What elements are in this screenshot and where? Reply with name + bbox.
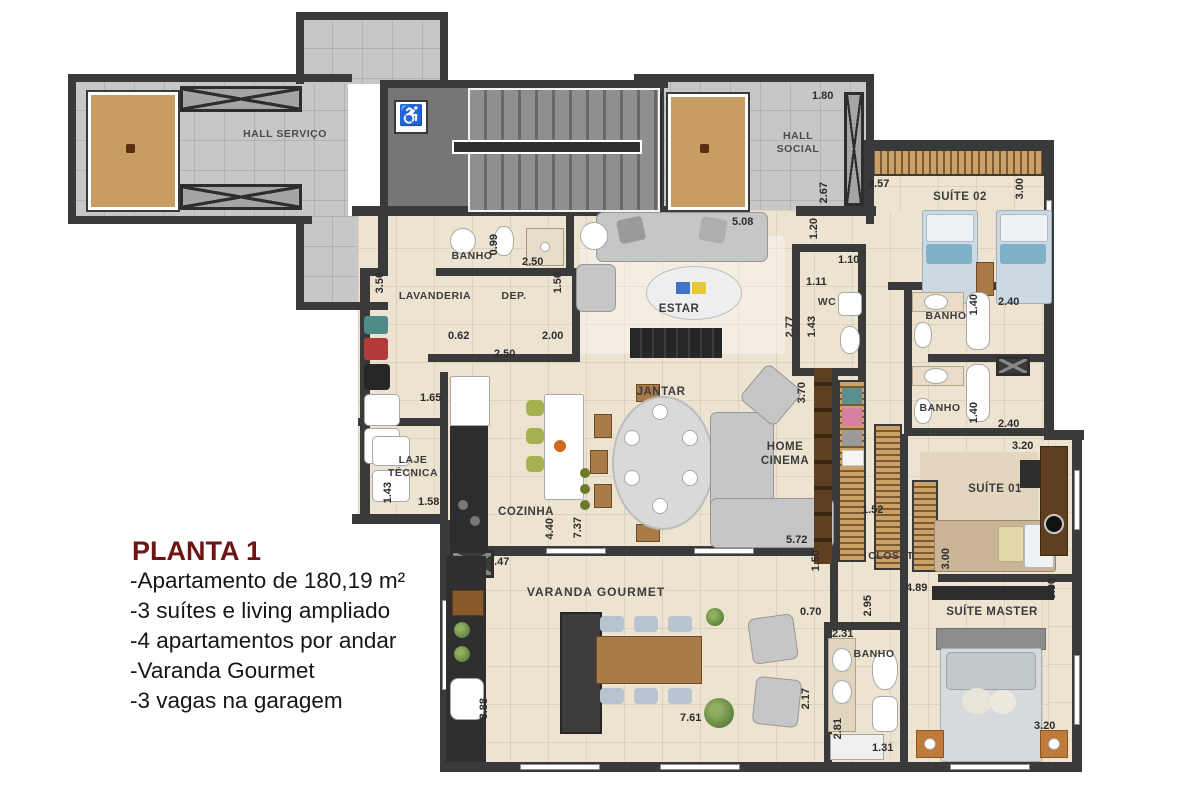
- dimension-label: 1.58: [418, 496, 439, 508]
- dimension-label: 1.65: [420, 392, 441, 404]
- wood-deck: [866, 149, 1044, 176]
- fridge: [450, 376, 490, 426]
- wall: [928, 354, 1054, 362]
- elevator-floor-marker: [126, 144, 135, 153]
- pillow: [990, 690, 1016, 714]
- blanket: [926, 244, 972, 264]
- bidet: [872, 696, 898, 732]
- dimension-label: 4.89: [906, 582, 927, 594]
- wall: [378, 206, 388, 276]
- dimension-label: 5.08: [732, 216, 753, 228]
- headboard: [936, 628, 1046, 650]
- dimension-label: 3.90: [1046, 578, 1058, 599]
- plate: [682, 470, 698, 486]
- cooktop-burner: [458, 500, 468, 510]
- elevator-floor-marker: [700, 144, 709, 153]
- dimension-label: 1.40: [968, 402, 980, 423]
- wheelchair-accessible-icon: ♿: [394, 100, 428, 134]
- armchair: [576, 264, 616, 312]
- armchair: [747, 613, 799, 665]
- dimension-label: 2.00: [542, 330, 563, 342]
- stool: [526, 400, 544, 416]
- dimension-label: 2.17: [800, 688, 812, 709]
- side-table: [580, 222, 608, 250]
- wall: [634, 74, 874, 82]
- decor-item: [676, 282, 690, 294]
- duct-shaft-symbol: [996, 356, 1030, 376]
- dimension-label: 2.40: [998, 296, 1019, 308]
- plant: [454, 622, 470, 638]
- dining-chair: [590, 450, 608, 474]
- pillow: [1000, 214, 1048, 242]
- wall: [68, 216, 312, 224]
- stair-handrail: [452, 140, 642, 154]
- dimension-label: 2.50: [522, 256, 543, 268]
- wall: [68, 74, 352, 82]
- room-label-estar: ESTAR: [650, 302, 708, 316]
- room-label-suite-01: SUÍTE 01: [956, 482, 1034, 496]
- dimension-label: 0.70: [800, 606, 821, 618]
- folded-clothes: [842, 408, 862, 426]
- lamp: [924, 738, 936, 750]
- folded-clothes: [842, 450, 864, 466]
- plate: [624, 470, 640, 486]
- plant: [706, 608, 724, 626]
- plate: [682, 430, 698, 446]
- dimension-label: 5.72: [786, 534, 807, 546]
- room-label-suite-02: SUÍTE 02: [922, 190, 998, 204]
- plate: [624, 430, 640, 446]
- room-label-lavanderia: LAVANDERIA: [392, 290, 478, 303]
- appliance: [364, 394, 400, 426]
- wall: [792, 244, 800, 374]
- dimension-label: 7.61: [680, 712, 701, 724]
- wall: [900, 574, 908, 770]
- wall: [68, 74, 76, 224]
- room-label-jantar: JANTAR: [630, 385, 692, 399]
- cooktop-burner: [470, 516, 480, 526]
- varanda-chair: [634, 616, 658, 632]
- nightstand: [976, 262, 994, 296]
- laundry-item: [364, 338, 388, 360]
- plan-info-line: -4 apartamentos por andar: [130, 628, 396, 654]
- washer: [364, 364, 390, 390]
- plant: [454, 646, 470, 662]
- room-label-suite-master: SUÍTE MASTER: [928, 605, 1056, 619]
- room-label-wc: WC: [812, 296, 842, 309]
- laundry-item: [364, 316, 388, 334]
- stool: [526, 456, 544, 472]
- plate: [652, 498, 668, 514]
- dimension-label: 3.88: [478, 698, 490, 719]
- dimension-label: 3.70: [796, 382, 808, 403]
- stool: [526, 428, 544, 444]
- dimension-label: 1.50: [552, 272, 564, 293]
- dimension-label: 4.40: [544, 518, 556, 539]
- window: [694, 548, 754, 554]
- dimension-label: 1.40: [968, 294, 980, 315]
- decor-item: [692, 282, 706, 294]
- pillow: [946, 652, 1036, 690]
- dimension-label: 1.80: [812, 90, 833, 102]
- room-label-banho-master: BANHO: [846, 648, 902, 661]
- dimension-label: 0.62: [448, 330, 469, 342]
- wall: [296, 216, 304, 310]
- elevator-door-symbol: [180, 184, 302, 210]
- room-label-hall-social: HALL SOCIAL: [762, 130, 834, 156]
- tv-wall-unit: [814, 368, 832, 564]
- dimension-label: 2.40: [998, 418, 1019, 430]
- room-label-home-cinema: HOME CINEMA: [754, 440, 816, 469]
- dimension-label: 1.50: [810, 550, 822, 571]
- dimension-label: 2.31: [832, 628, 853, 640]
- wall: [296, 12, 448, 20]
- wall: [792, 244, 866, 252]
- decor-item: [580, 484, 590, 494]
- pillow: [926, 214, 974, 242]
- wall: [566, 206, 574, 276]
- elevator-door-symbol: [844, 92, 864, 206]
- speaker: [1044, 514, 1064, 534]
- dimension-label: 7.37: [572, 517, 584, 538]
- lamp: [1048, 738, 1060, 750]
- wall: [380, 80, 668, 88]
- dimension-label: 3.56: [374, 272, 386, 293]
- window: [1074, 470, 1080, 530]
- varanda-table: [596, 636, 702, 684]
- window: [546, 548, 606, 554]
- dimension-label: 2.77: [784, 316, 796, 337]
- wall: [904, 290, 912, 434]
- dimension-label: 3.20: [1012, 440, 1033, 452]
- elevator-door-symbol: [180, 86, 302, 112]
- plan-title: PLANTA 1: [132, 536, 261, 567]
- varanda-chair: [600, 688, 624, 704]
- floor-plan: ♿: [0, 0, 1200, 791]
- dimension-label: 1.10: [838, 254, 859, 266]
- plate: [652, 404, 668, 420]
- kitchen-counter: [450, 426, 488, 550]
- varanda-chair: [668, 688, 692, 704]
- dimension-label: 7.47: [488, 556, 509, 568]
- sink: [832, 680, 852, 704]
- dimension-label: 2.50: [494, 348, 515, 360]
- pillow: [698, 216, 728, 244]
- dimension-label: 3.57: [868, 178, 889, 190]
- blanket: [1000, 244, 1046, 264]
- toilet: [840, 326, 860, 354]
- dimension-label: 2.95: [862, 595, 874, 616]
- tv-console: [630, 328, 722, 358]
- sink: [924, 368, 948, 384]
- room-label-laje-tecnica: LAJE TÉCNICA: [382, 454, 444, 480]
- varanda-chair: [600, 616, 624, 632]
- wall: [296, 12, 304, 84]
- dimension-label: 2.67: [818, 182, 830, 203]
- plan-info-line: -3 suítes e living ampliado: [130, 598, 390, 624]
- wall: [380, 80, 388, 214]
- dimension-label: 3.20: [1034, 720, 1055, 732]
- wall: [858, 140, 1054, 150]
- room-label-varanda-gourmet: VARANDA GOURMET: [520, 585, 672, 600]
- room-label-closet: CLOSET: [860, 550, 922, 563]
- room-label-banho-suite02: BANHO: [918, 310, 974, 323]
- dimension-label: 1.43: [806, 316, 818, 337]
- wall: [296, 302, 388, 310]
- room-label-hall-servico: HALL SERVIÇO: [240, 128, 330, 141]
- dimension-label: 1.52: [862, 504, 883, 516]
- dimension-label: 0.99: [488, 234, 500, 255]
- dimension-label: 1.11: [806, 276, 827, 288]
- decor-item: [580, 468, 590, 478]
- toilet: [914, 322, 932, 348]
- pillow: [962, 688, 992, 714]
- folded-clothes: [842, 430, 862, 446]
- window: [520, 764, 600, 770]
- folded-clothes: [842, 388, 862, 404]
- room-label-dep: DEP.: [494, 290, 534, 303]
- plan-info-line: -3 vagas na garagem: [130, 688, 343, 714]
- shower-drain: [540, 242, 550, 252]
- tv-console: [932, 586, 1054, 600]
- dimension-label: 1.20: [808, 218, 820, 239]
- window: [950, 764, 1030, 770]
- varanda-chair: [668, 616, 692, 632]
- wall: [440, 12, 448, 84]
- dimension-label: 1.43: [382, 482, 394, 503]
- wardrobe: [874, 424, 902, 570]
- dining-chair: [594, 484, 612, 508]
- decor-item: [580, 500, 590, 510]
- dimension-label: 1.31: [872, 742, 893, 754]
- sink: [924, 294, 948, 310]
- decor-item: [554, 440, 566, 452]
- plan-info-line: -Apartamento de 180,19 m²: [130, 568, 405, 594]
- armchair: [752, 676, 803, 729]
- plant: [704, 698, 734, 728]
- wall: [904, 428, 1054, 436]
- plan-info-line: -Varanda Gourmet: [130, 658, 315, 684]
- desk: [1040, 446, 1068, 556]
- dimension-label: 2.81: [832, 718, 844, 739]
- dining-chair: [594, 414, 612, 438]
- window: [660, 764, 740, 770]
- room-label-banho-suite01: BANHO: [912, 402, 968, 415]
- varanda-chair: [634, 688, 658, 704]
- window: [1074, 655, 1080, 725]
- dimension-label: 3.00: [940, 548, 952, 569]
- dimension-label: 3.00: [1014, 178, 1026, 199]
- wood-crate: [452, 590, 484, 616]
- pillow: [998, 526, 1024, 562]
